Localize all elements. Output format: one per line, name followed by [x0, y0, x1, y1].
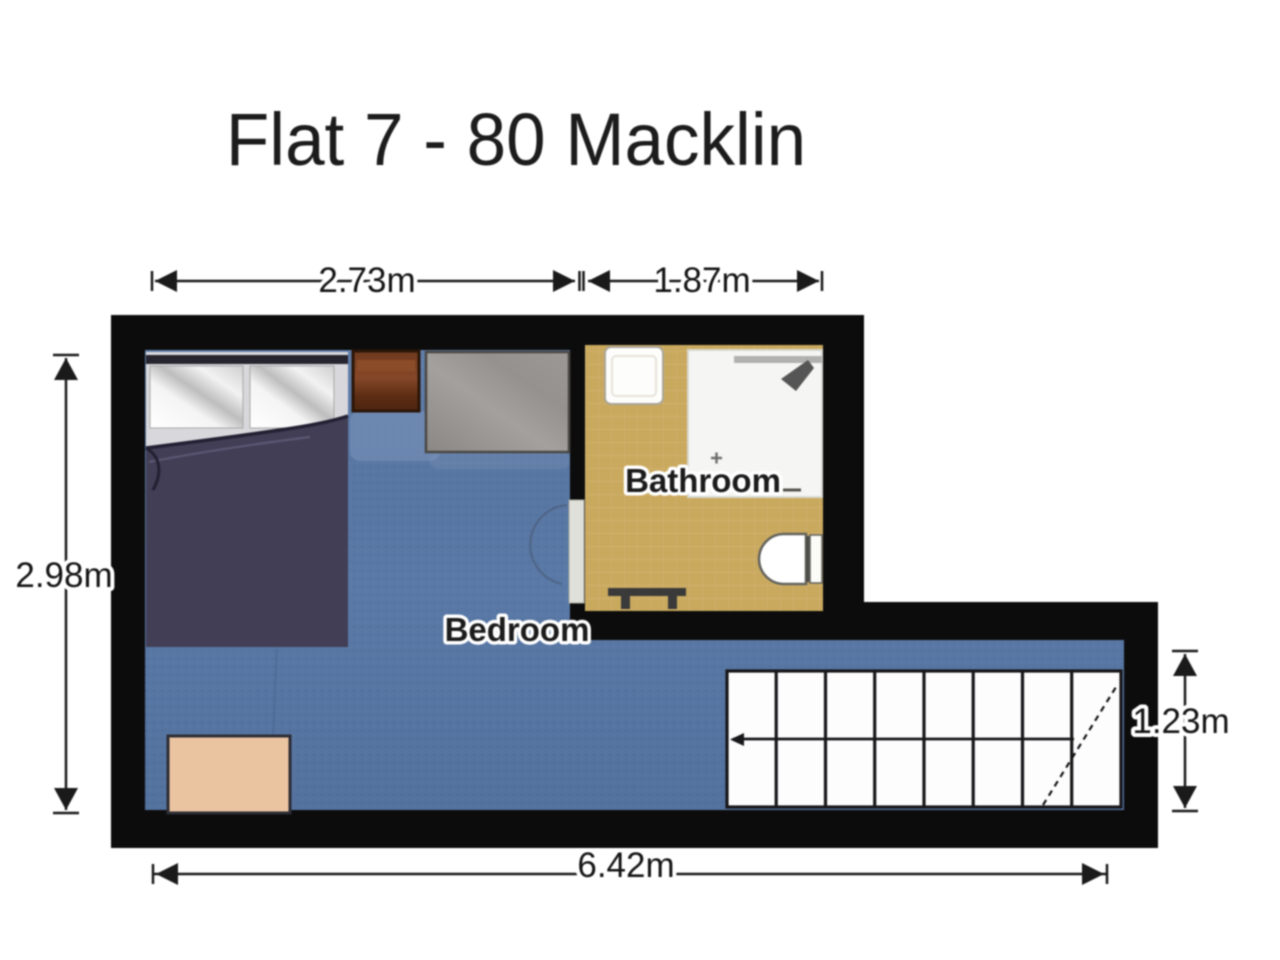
svg-text:6.42m: 6.42m: [577, 846, 674, 885]
svg-text:Bedroom: Bedroom: [445, 611, 590, 648]
svg-text:1.23m: 1.23m: [1132, 702, 1229, 741]
svg-text:2.98m: 2.98m: [15, 556, 112, 595]
svg-text:1.87m: 1.87m: [653, 261, 750, 300]
svg-text:2.73m: 2.73m: [318, 261, 415, 300]
svg-text:Bathroom: Bathroom: [625, 462, 781, 499]
svg-text:Flat 7 - 80 Macklin: Flat 7 - 80 Macklin: [226, 99, 806, 182]
